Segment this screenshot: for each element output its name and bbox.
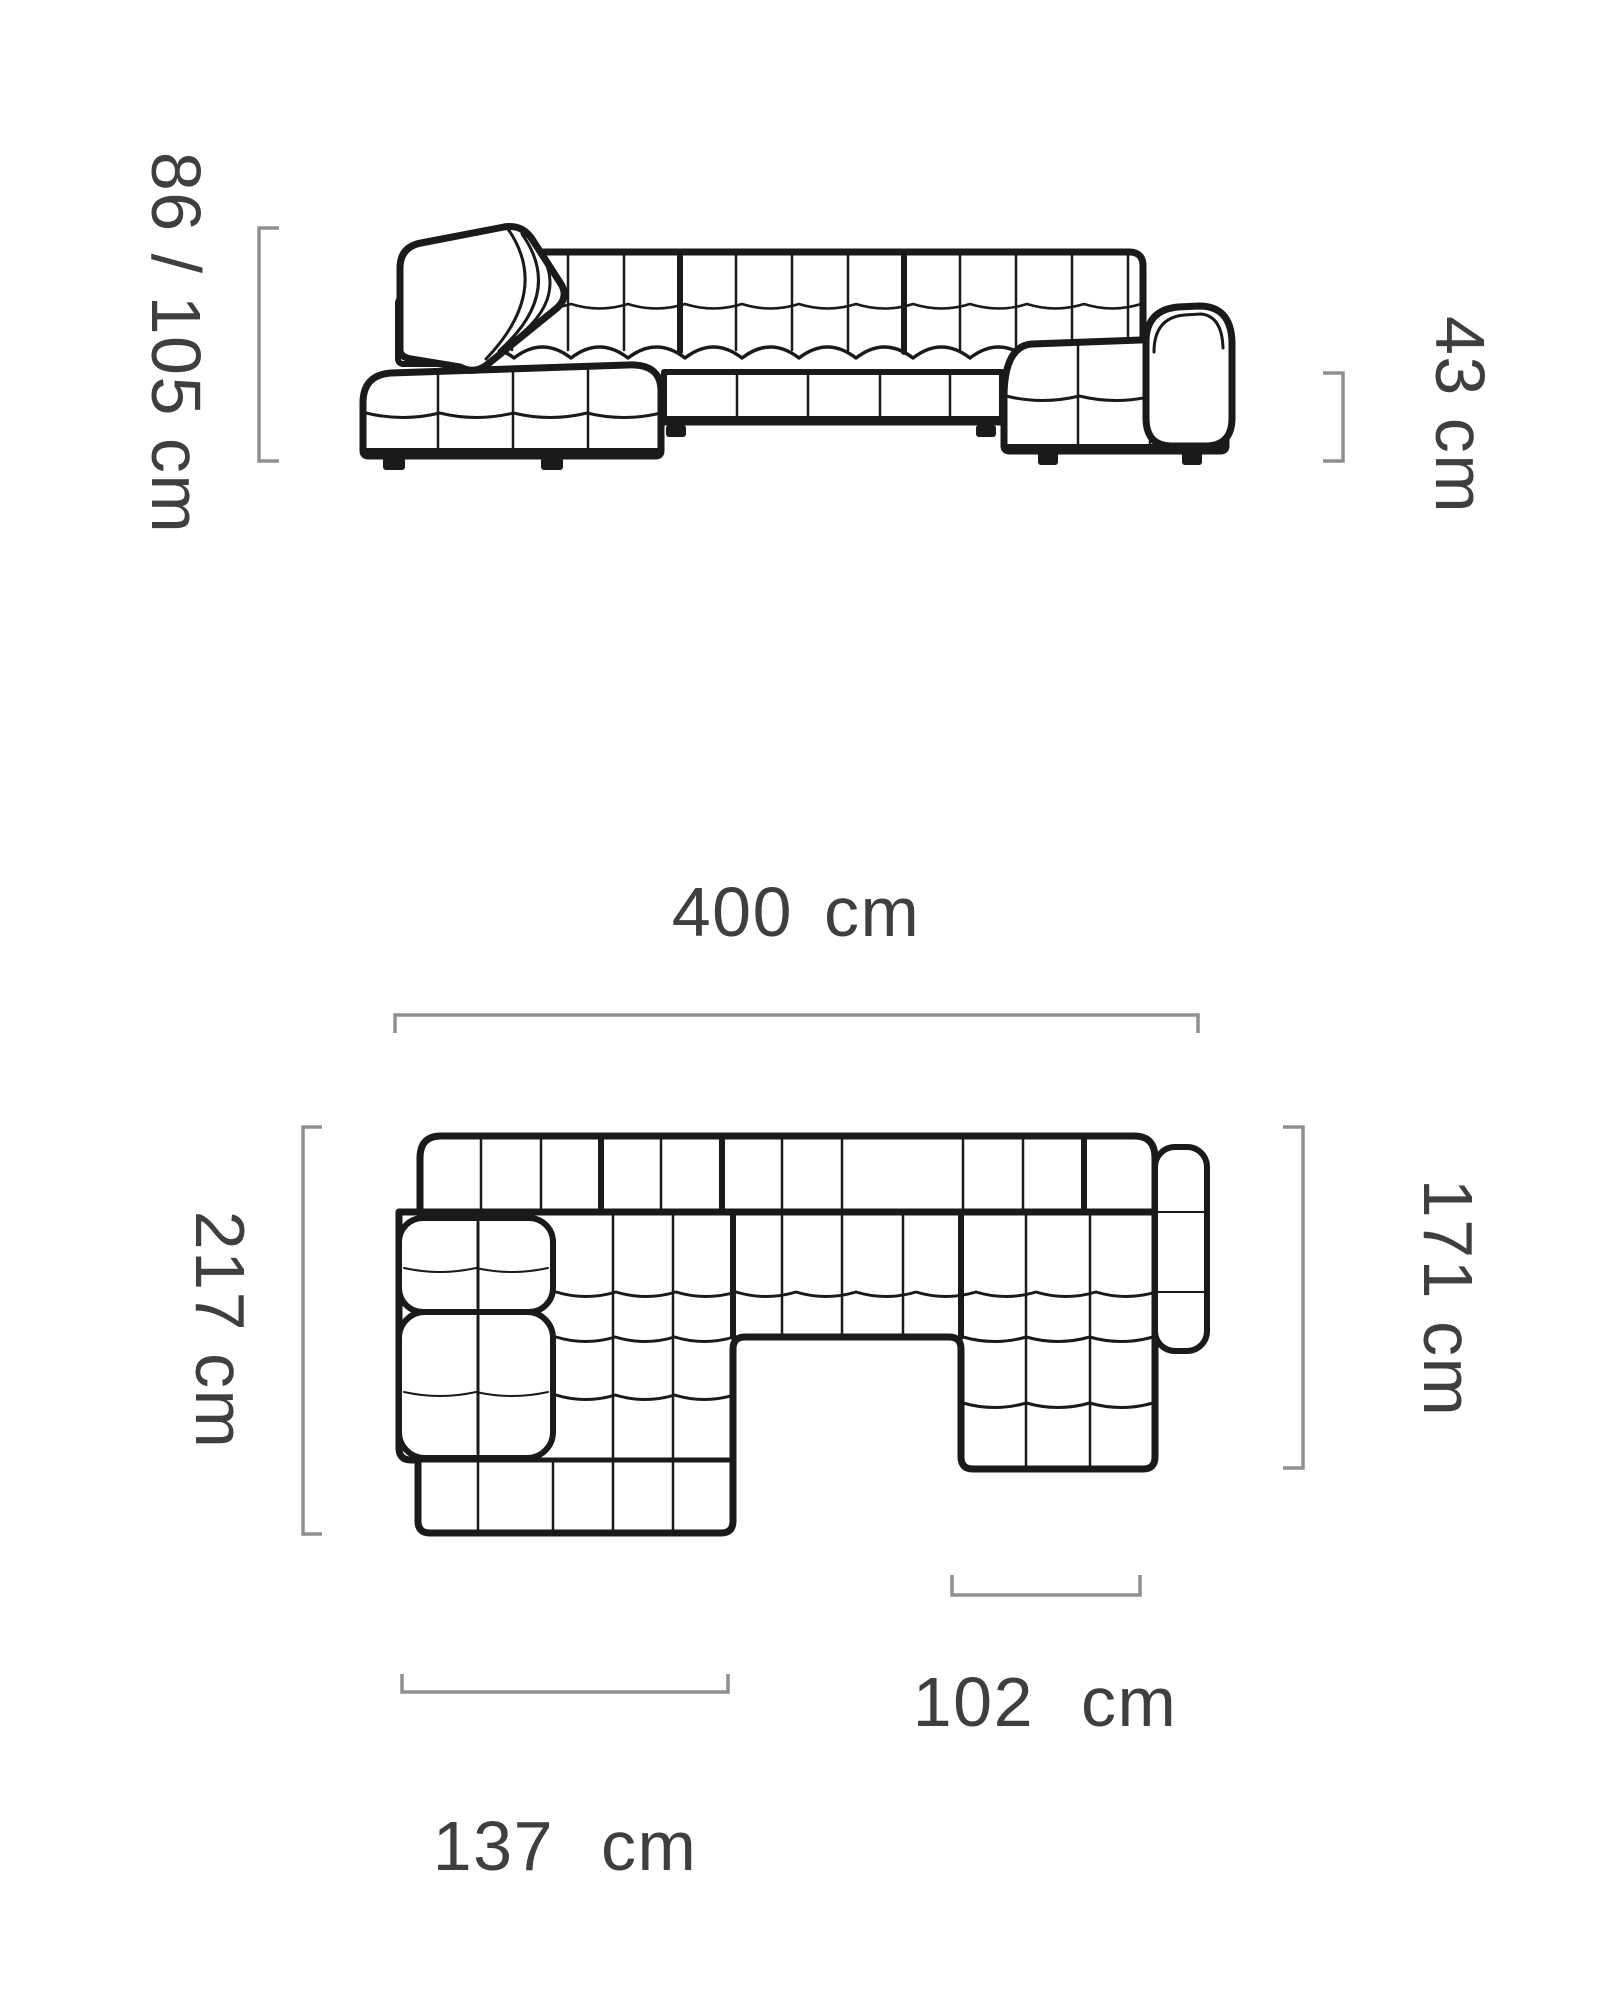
top-view — [399, 1136, 1207, 1533]
front-back-tuft-lines — [512, 256, 1128, 350]
depth-left-label: 217 cm — [181, 1211, 259, 1450]
top-chaise-cushion-upper — [399, 1218, 553, 1312]
height-bracket — [259, 228, 279, 461]
width-label: 400 cm — [672, 873, 921, 951]
right-chaise-bracket — [952, 1575, 1140, 1595]
right-chaise-width-label: 102 cm — [913, 1663, 1178, 1741]
seat-height-bracket — [1323, 373, 1343, 461]
top-chaise-cushion-lower — [399, 1312, 553, 1458]
top-back-band — [420, 1136, 1155, 1212]
left-chaise-bracket — [402, 1674, 728, 1692]
top-right-armrest — [1155, 1147, 1207, 1351]
width-bracket — [395, 1015, 1198, 1033]
diagram-page: 86 / 105 cm 43 cm 400 cm 217 cm 171 cm 1… — [0, 0, 1620, 2000]
sofa-dimension-diagram: 86 / 105 cm 43 cm 400 cm 217 cm 171 cm 1… — [0, 0, 1620, 2000]
depth-left-bracket — [303, 1127, 322, 1534]
height-label: 86 / 105 cm — [137, 152, 215, 534]
front-view — [363, 227, 1232, 471]
depth-right-bracket — [1283, 1127, 1303, 1468]
depth-right-label: 171 cm — [1409, 1179, 1487, 1418]
seat-height-label: 43 cm — [1421, 316, 1499, 514]
front-middle-seat — [664, 372, 1002, 419]
left-chaise-width-label: 137 cm — [433, 1807, 698, 1885]
